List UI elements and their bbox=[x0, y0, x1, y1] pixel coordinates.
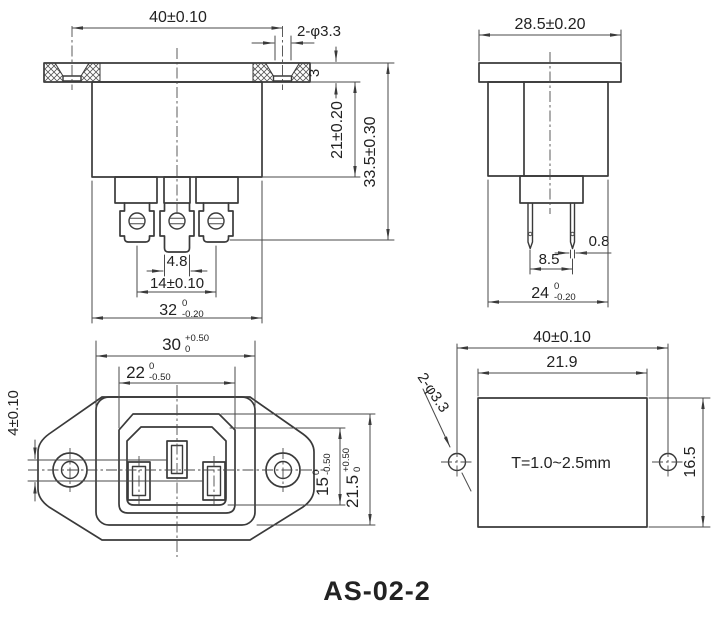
terminal-screws bbox=[129, 213, 224, 229]
pin-right-hole bbox=[571, 232, 574, 235]
pin-left bbox=[528, 203, 533, 249]
dim-face-pin-offset: 4±0.10 bbox=[5, 390, 22, 436]
dim-face-height-tol-top: +0.50 bbox=[341, 448, 352, 472]
dim-front-flange-thickness: 3 bbox=[306, 69, 323, 77]
terminal-block-right bbox=[196, 177, 238, 203]
pin-right bbox=[571, 203, 575, 249]
dim-face-recess-height-tol-top: 0 bbox=[311, 470, 322, 475]
hatch-left-b bbox=[81, 63, 100, 82]
hatch-right-a bbox=[253, 63, 274, 82]
hatch-left-a bbox=[44, 63, 63, 82]
dim-cutout-width: 21.9 bbox=[546, 354, 577, 371]
dim-front-mount-holes: 2-φ3.3 bbox=[297, 23, 341, 40]
dim-cutout-holes: 2-φ3.3 bbox=[414, 370, 453, 416]
dim-face-recess-width: 22 bbox=[126, 363, 145, 382]
terminal-right bbox=[199, 203, 233, 242]
face-flange-outline bbox=[38, 397, 314, 540]
dim-side-flange-width: 28.5±0.20 bbox=[514, 16, 585, 33]
dim-cutout-hole-spacing: 40±0.10 bbox=[533, 329, 591, 346]
technical-drawing-page: 40±0.10 2-φ3.3 3 21±0.20 33.5±0.30 4.8 1… bbox=[0, 0, 727, 621]
side-terminal-block bbox=[520, 176, 583, 203]
dim-front-body-width: 32 bbox=[159, 302, 177, 319]
dim-cutout-height: 16.5 bbox=[682, 446, 699, 477]
dim-face-height-tol-bottom: 0 bbox=[352, 467, 363, 472]
dim-front-tab-width: 4.8 bbox=[167, 253, 188, 270]
view-side-section: 28.5±0.20 0.8 8.5 24 0 -0.20 bbox=[479, 16, 621, 307]
dim-front-body-width-tol-bottom: -0.20 bbox=[182, 309, 204, 320]
dim-face-body-width-tol-top: +0.50 bbox=[185, 333, 209, 344]
view-panel-cutout: 2-φ3.3 40±0.10 21.9 16.5 T=1.0~2.5mm bbox=[414, 329, 710, 527]
dim-face-body-width-tol-bottom: 0 bbox=[185, 344, 190, 355]
part-number-title: AS-02-2 bbox=[323, 576, 431, 606]
dim-front-terminal-spacing: 14±0.10 bbox=[150, 275, 204, 292]
terminal-left bbox=[120, 203, 154, 242]
dim-face-height-group: 21.5 +0.50 0 bbox=[341, 448, 363, 508]
dim-side-body-width-tol-bottom: -0.20 bbox=[554, 292, 576, 303]
panel-thickness-note: T=1.0~2.5mm bbox=[511, 455, 611, 472]
pin-left-hole bbox=[529, 232, 532, 235]
drawing-canvas: 40±0.10 2-φ3.3 3 21±0.20 33.5±0.30 4.8 1… bbox=[0, 0, 727, 621]
dim-face-recess-height: 15 bbox=[313, 477, 332, 496]
dim-face-recess-height-tol-bottom: -0.50 bbox=[322, 453, 333, 475]
dim-front-body-width-tol-top: 0 bbox=[182, 298, 187, 309]
view-front-section: 40±0.10 2-φ3.3 3 21±0.20 33.5±0.30 4.8 1… bbox=[44, 9, 394, 323]
dim-side-body-width-tol-top: 0 bbox=[554, 281, 559, 292]
view-face: 30 +0.50 0 22 0 -0.50 4±0.10 15 0 -0.50 … bbox=[5, 333, 375, 557]
side-body-outline bbox=[488, 82, 608, 176]
dim-side-pin-spacing: 8.5 bbox=[539, 251, 560, 268]
dim-face-recess-width-tol-bottom: -0.50 bbox=[149, 372, 171, 383]
dim-front-body-depth: 21±0.20 bbox=[329, 101, 346, 159]
dim-face-recess-width-tol-top: 0 bbox=[149, 361, 154, 372]
dim-side-pin-thickness: 0.8 bbox=[589, 233, 610, 250]
dim-front-flange-width: 40±0.10 bbox=[149, 9, 207, 26]
dim-face-height: 21.5 bbox=[343, 475, 362, 508]
dim-front-overall-depth: 33.5±0.30 bbox=[362, 116, 379, 187]
dim-face-body-width: 30 bbox=[162, 335, 181, 354]
dim-side-body-width: 24 bbox=[531, 285, 549, 302]
terminal-block-left bbox=[115, 177, 157, 203]
